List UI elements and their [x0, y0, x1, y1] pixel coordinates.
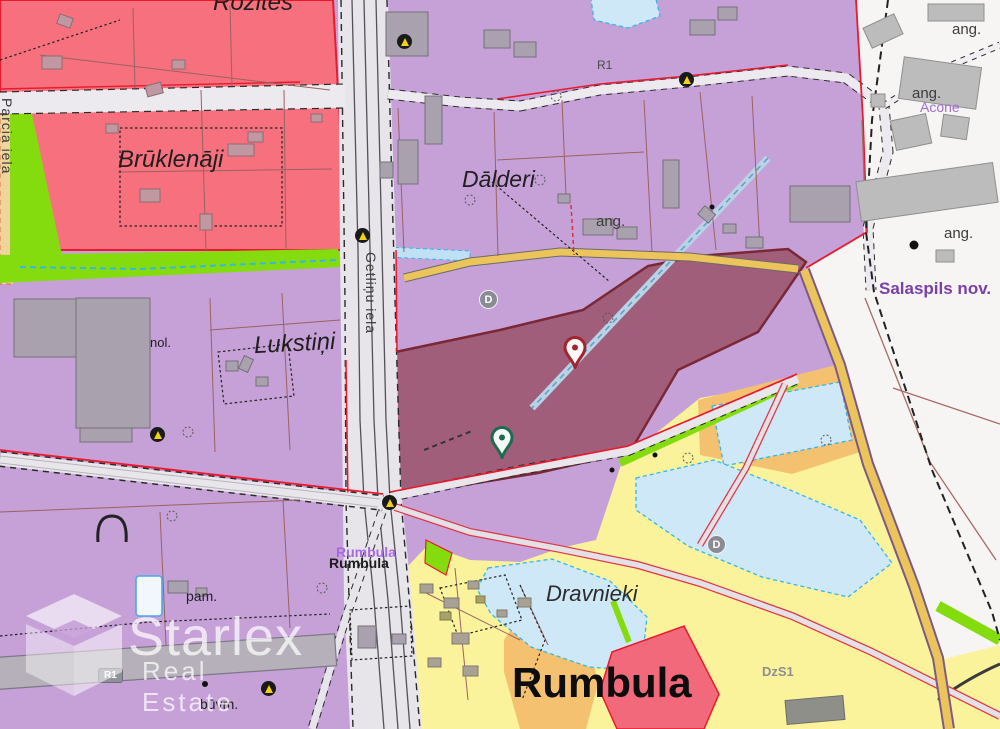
building: [425, 96, 442, 144]
place-label-rumbula: Rumbula: [512, 662, 692, 704]
annotation-ang: ang.: [912, 86, 941, 101]
annotation-ang: ang.: [952, 22, 981, 37]
building: [663, 160, 679, 208]
property-pin-red[interactable]: [563, 336, 587, 369]
building: [392, 634, 406, 644]
warning-triangle-icon: [359, 232, 367, 240]
building: [723, 224, 736, 233]
street-label-getlinu: Getliņu iela: [364, 252, 378, 334]
annotation-r1: R1: [597, 59, 612, 71]
building: [941, 114, 970, 139]
warning-icon: [150, 427, 165, 442]
warning-triangle-icon: [401, 38, 409, 46]
building: [936, 250, 954, 262]
building: [248, 132, 263, 142]
building: [558, 194, 570, 203]
building: [420, 584, 433, 593]
building: [871, 94, 885, 107]
building: [228, 144, 254, 156]
annotation-pam: pam.: [186, 589, 217, 603]
place-label-acone: Acone: [920, 100, 960, 114]
building: [42, 56, 62, 69]
red-line-rail: [396, 250, 397, 352]
starlex-logo-icon: [24, 592, 124, 700]
building: [256, 377, 268, 386]
building: [514, 42, 536, 57]
black-dot: [710, 205, 715, 210]
building: [444, 598, 459, 608]
warning-triangle-icon: [386, 499, 394, 507]
station-label: Rumbula: [329, 556, 389, 570]
warning-triangle-icon: [683, 76, 691, 84]
street-label-edge: Parcia iela: [0, 98, 14, 174]
building: [80, 428, 132, 442]
building: [463, 666, 478, 676]
building: [226, 361, 238, 371]
warning-icon: [382, 495, 397, 510]
building: [690, 20, 715, 35]
building: [200, 214, 212, 230]
d-marker-icon: D: [479, 290, 498, 309]
property-pin-green[interactable]: [490, 426, 514, 459]
building: [518, 598, 531, 607]
building: [497, 610, 507, 617]
building: [106, 124, 118, 133]
building-dark-blob: [785, 696, 845, 725]
building: [452, 633, 469, 644]
building: [476, 596, 485, 603]
d-marker-icon: D: [707, 535, 726, 554]
building: [14, 299, 78, 357]
building: [718, 7, 737, 20]
place-label-bruklenaji: Brūklenāji: [118, 148, 223, 172]
building: [790, 186, 850, 222]
place-label-dalderi: Dālderi: [462, 168, 535, 191]
building: [172, 60, 185, 69]
building: [358, 626, 376, 648]
black-dot: [910, 241, 919, 250]
building: [440, 612, 451, 620]
building: [428, 658, 441, 667]
warning-icon: [261, 681, 276, 696]
annotation-dzs1: DzS1: [762, 665, 794, 678]
building: [398, 140, 418, 184]
black-dot: [610, 468, 615, 473]
building: [76, 298, 150, 428]
building: [746, 237, 763, 248]
building: [168, 581, 188, 593]
place-label-salaspils: Salaspils nov.: [879, 280, 991, 297]
annotation-ang: ang.: [596, 214, 625, 229]
warning-icon: [355, 228, 370, 243]
building: [140, 189, 160, 202]
building: [928, 4, 984, 21]
place-label-rozites: Rozītes: [213, 0, 293, 15]
warning-triangle-icon: [154, 431, 162, 439]
annotation-ang: ang.: [944, 226, 973, 241]
building: [311, 114, 322, 122]
warning-triangle-icon: [265, 685, 273, 693]
building: [468, 581, 479, 589]
watermark-tagline: Real Estate: [142, 656, 234, 718]
annotation-nol: nol.: [150, 336, 171, 349]
building: [484, 30, 510, 48]
warning-icon: [397, 34, 412, 49]
map-canvas[interactable]: D D Rozītes Brūklenāji Dālderi Lukstiņi …: [0, 0, 1000, 729]
building: [380, 162, 393, 178]
place-label-lukstini: Lukstiņi: [253, 330, 336, 358]
place-label-dravnieki: Dravnieki: [546, 583, 638, 605]
warning-icon: [679, 72, 694, 87]
black-dot: [653, 453, 658, 458]
